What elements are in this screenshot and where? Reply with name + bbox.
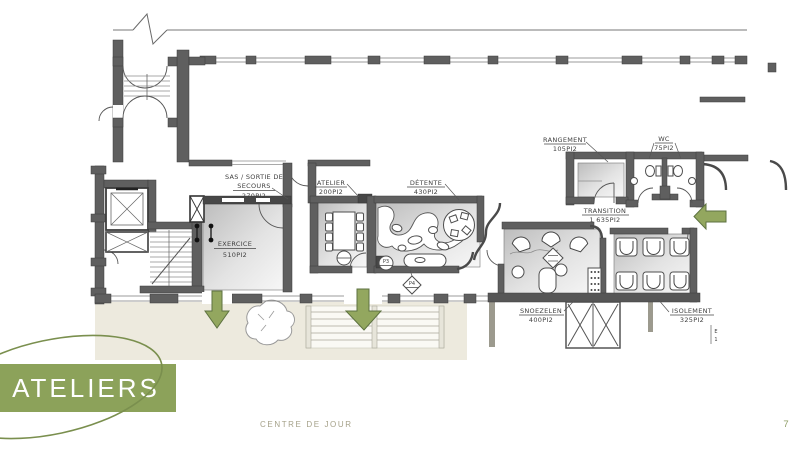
round-table — [444, 210, 475, 241]
svg-text:325PI2: 325PI2 — [680, 316, 704, 324]
svg-text:200PI2: 200PI2 — [319, 188, 343, 196]
slide-page: E 1 — [0, 0, 800, 450]
footer-title: CENTRE DE JOUR — [260, 420, 353, 429]
elevator-icon — [106, 188, 148, 230]
label-transition: TRANSITION 1 635PI2 — [582, 207, 629, 224]
svg-text:DÉTENTE: DÉTENTE — [410, 178, 442, 187]
wc-rooms — [626, 152, 704, 207]
svg-text:TRANSITION: TRANSITION — [583, 207, 626, 215]
svg-text:510PI2: 510PI2 — [223, 251, 247, 259]
svg-text:270PI2: 270PI2 — [242, 192, 266, 200]
svg-text:430PI2: 430PI2 — [414, 188, 438, 196]
svg-text:ATELIER: ATELIER — [317, 179, 345, 187]
floor-plan-drawing: E 1 — [0, 0, 800, 450]
shaft — [106, 232, 148, 252]
break-line-icon — [133, 14, 167, 44]
exterior-terrace: E 1 — [95, 300, 718, 360]
fixture-tag-icon — [337, 251, 351, 265]
marker-p3: P3 — [379, 256, 393, 270]
svg-text:ISOLEMENT: ISOLEMENT — [672, 307, 712, 315]
svg-text:SAS / SORTIE DE: SAS / SORTIE DE — [225, 173, 283, 181]
svg-text:EXERCICE: EXERCICE — [218, 240, 252, 248]
svg-text:75PI2: 75PI2 — [654, 144, 674, 152]
svg-text:WC: WC — [658, 135, 670, 143]
vestibule — [99, 40, 205, 162]
svg-text:105PI2: 105PI2 — [553, 145, 577, 153]
rangement-floor — [578, 163, 624, 197]
section-tag-letter: E — [714, 329, 717, 335]
svg-text:SNOEZELEN: SNOEZELEN — [520, 307, 562, 315]
column — [190, 196, 204, 222]
entry-arrow-left-icon — [694, 204, 726, 229]
svg-text:P3: P3 — [383, 259, 389, 265]
svg-text:SECOURS: SECOURS — [237, 182, 270, 190]
svg-text:P4: P4 — [409, 281, 415, 287]
svg-text:1 635PI2: 1 635PI2 — [590, 216, 621, 224]
section-tag-number: 1 — [714, 337, 717, 343]
service-core — [91, 166, 204, 304]
svg-text:RANGEMENT: RANGEMENT — [543, 136, 587, 144]
badge-label: ATELIERS — [12, 373, 160, 403]
svg-text:400PI2: 400PI2 — [529, 316, 553, 324]
page-number: 7 — [783, 419, 788, 430]
marker-p4: P4 — [403, 270, 421, 294]
stair-lower — [150, 230, 192, 286]
top-exterior-wall — [113, 14, 776, 102]
label-atelier: ATELIER 200PI2 — [315, 179, 359, 197]
